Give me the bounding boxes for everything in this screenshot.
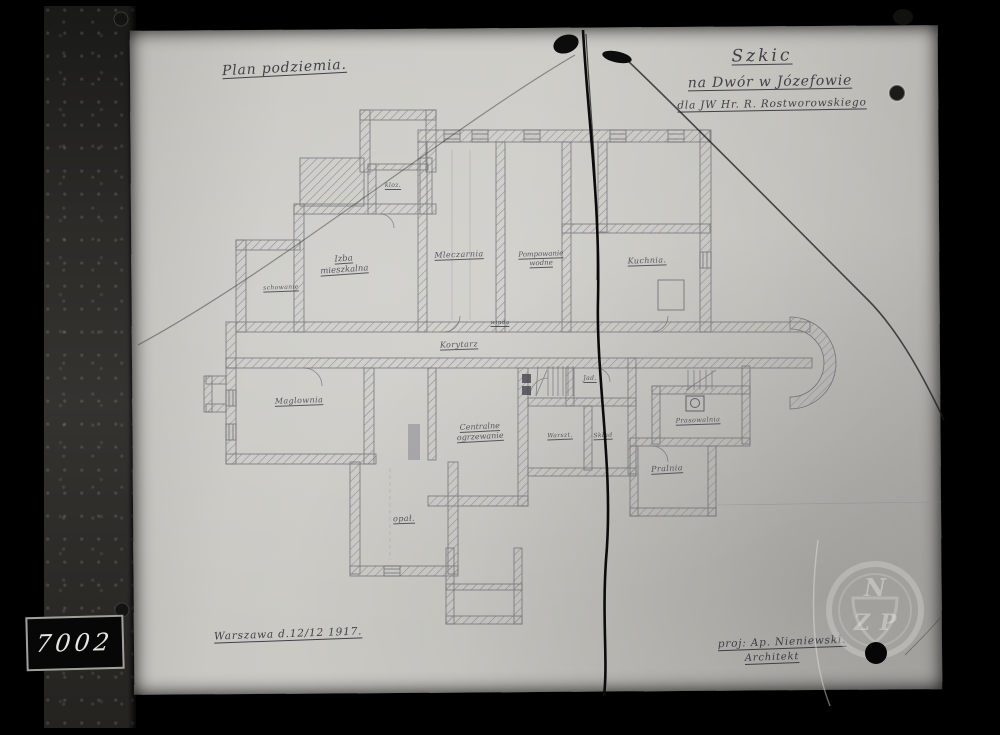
room-label-korytarz: Korytarz	[440, 339, 478, 349]
room-label-pralnia: Pralnia	[651, 463, 683, 474]
room-label-sklad: Skład	[593, 432, 612, 440]
room-label-schowanie: schowanie	[263, 283, 299, 291]
room-label-warsztat: Warszt.	[547, 432, 573, 440]
room-label-kuchnia: Kuchnia.	[627, 255, 666, 265]
room-label-pompowanie: Pompowanie wodne	[518, 249, 564, 268]
drawing-title-line2: na Dwór w Józefowie	[688, 73, 853, 92]
plate-number-label: 7002	[25, 615, 124, 672]
room-label-kloz: kloz.	[385, 182, 401, 189]
architect-title: Architekt	[745, 651, 800, 664]
room-label-maglownia: Maglownia	[275, 395, 324, 406]
room-label-izba-mieszkalna: Izba mieszkalna	[319, 252, 369, 277]
plate-number: 7002	[35, 628, 115, 658]
room-label-centralne-ogrzewanie: Centralne ogrzewanie	[456, 421, 504, 443]
paper-sheet	[130, 25, 943, 695]
room-label-winda: winda	[491, 320, 510, 326]
room-label-prasowalnia: Prasowalnia	[676, 415, 721, 425]
room-label-opal: opał.	[393, 514, 415, 524]
drawing-title-line1: Szkic	[731, 45, 792, 66]
pin-top-right	[893, 9, 913, 25]
photograph: Plan podziemia. Szkic na Dwór w Józefowi…	[0, 0, 1000, 735]
room-label-jad: Jad.	[583, 375, 596, 382]
room-label-mleczarnia: Mleczarnia	[434, 249, 484, 260]
